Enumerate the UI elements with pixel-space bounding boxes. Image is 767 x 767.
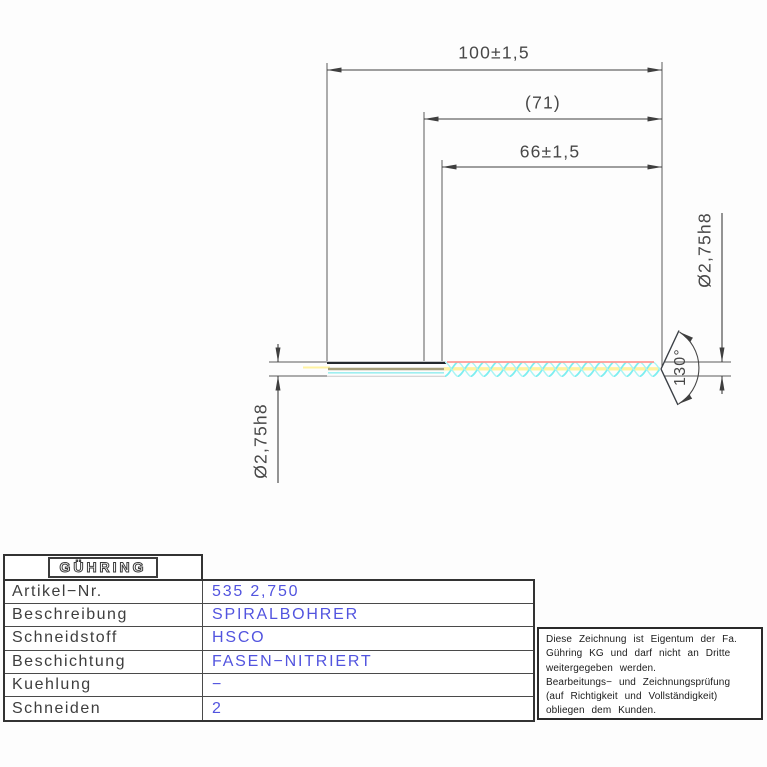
extension-lines	[269, 62, 731, 376]
logo-cell: GÜHRING	[3, 554, 203, 579]
title-block: GÜHRING Artikel−Nr. 535 2,750 Beschreibu…	[3, 554, 535, 722]
note-line: obliegen dem Kunden.	[546, 704, 757, 718]
row-value-artikel-nr: 535 2,750	[203, 581, 533, 603]
drill-drawing-linework	[0, 0, 767, 545]
dim-label-flute-length: 66±1,5	[520, 142, 581, 163]
note-line: weitergegeben werden.	[546, 662, 757, 676]
guehring-logo: GÜHRING	[48, 557, 157, 578]
row-label-beschreibung: Beschreibung	[5, 604, 203, 626]
table-row: Schneidstoff HSCO	[5, 627, 533, 650]
dim-label-diameter-left: Ø2,75h8	[251, 403, 272, 479]
row-label-schneiden: Schneiden	[5, 697, 203, 720]
row-label-kuehlung: Kuehlung	[5, 674, 203, 696]
flute-helix-hatch	[445, 362, 660, 378]
table-row: Kuehlung −	[5, 674, 533, 697]
ownership-note: Diese Zeichnung ist Eigentum der Fa. Güh…	[537, 627, 763, 720]
table-row: Beschichtung FASEN−NITRIERT	[5, 651, 533, 674]
dim-label-flute-ref: (71)	[525, 93, 561, 114]
row-value-beschreibung: SPIRALBOHRER	[203, 604, 533, 626]
drill-shank	[303, 363, 446, 376]
table-row: Artikel−Nr. 535 2,750	[5, 581, 533, 604]
row-value-beschichtung: FASEN−NITRIERT	[203, 651, 533, 673]
dimension-lines	[278, 70, 722, 483]
note-line: (auf Richtigkeit und Vollständigkeit)	[546, 690, 757, 704]
title-block-table: Artikel−Nr. 535 2,750 Beschreibung SPIRA…	[3, 579, 535, 722]
drill-flute	[444, 362, 660, 378]
dim-label-point-angle: 130°	[672, 348, 690, 386]
row-value-schneiden: 2	[203, 697, 533, 720]
row-label-schneidstoff: Schneidstoff	[5, 627, 203, 649]
note-line: Gühring KG und darf nicht an Dritte	[546, 647, 757, 661]
note-line: Bearbeitungs− und Zeichnungsprüfung	[546, 676, 757, 690]
dim-label-diameter-right: Ø2,75h8	[695, 212, 716, 288]
row-value-kuehlung: −	[203, 674, 533, 696]
note-line: Diese Zeichnung ist Eigentum der Fa.	[546, 633, 757, 647]
row-label-beschichtung: Beschichtung	[5, 651, 203, 673]
dim-label-overall-length: 100±1,5	[458, 43, 530, 64]
table-row: Schneiden 2	[5, 697, 533, 720]
row-value-schneidstoff: HSCO	[203, 627, 533, 649]
technical-drawing-sheet: 100±1,5 (71) 66±1,5 Ø2,75h8 Ø2,75h8 130°…	[0, 0, 767, 767]
row-label-artikel-nr: Artikel−Nr.	[5, 581, 203, 603]
table-row: Beschreibung SPIRALBOHRER	[5, 604, 533, 627]
